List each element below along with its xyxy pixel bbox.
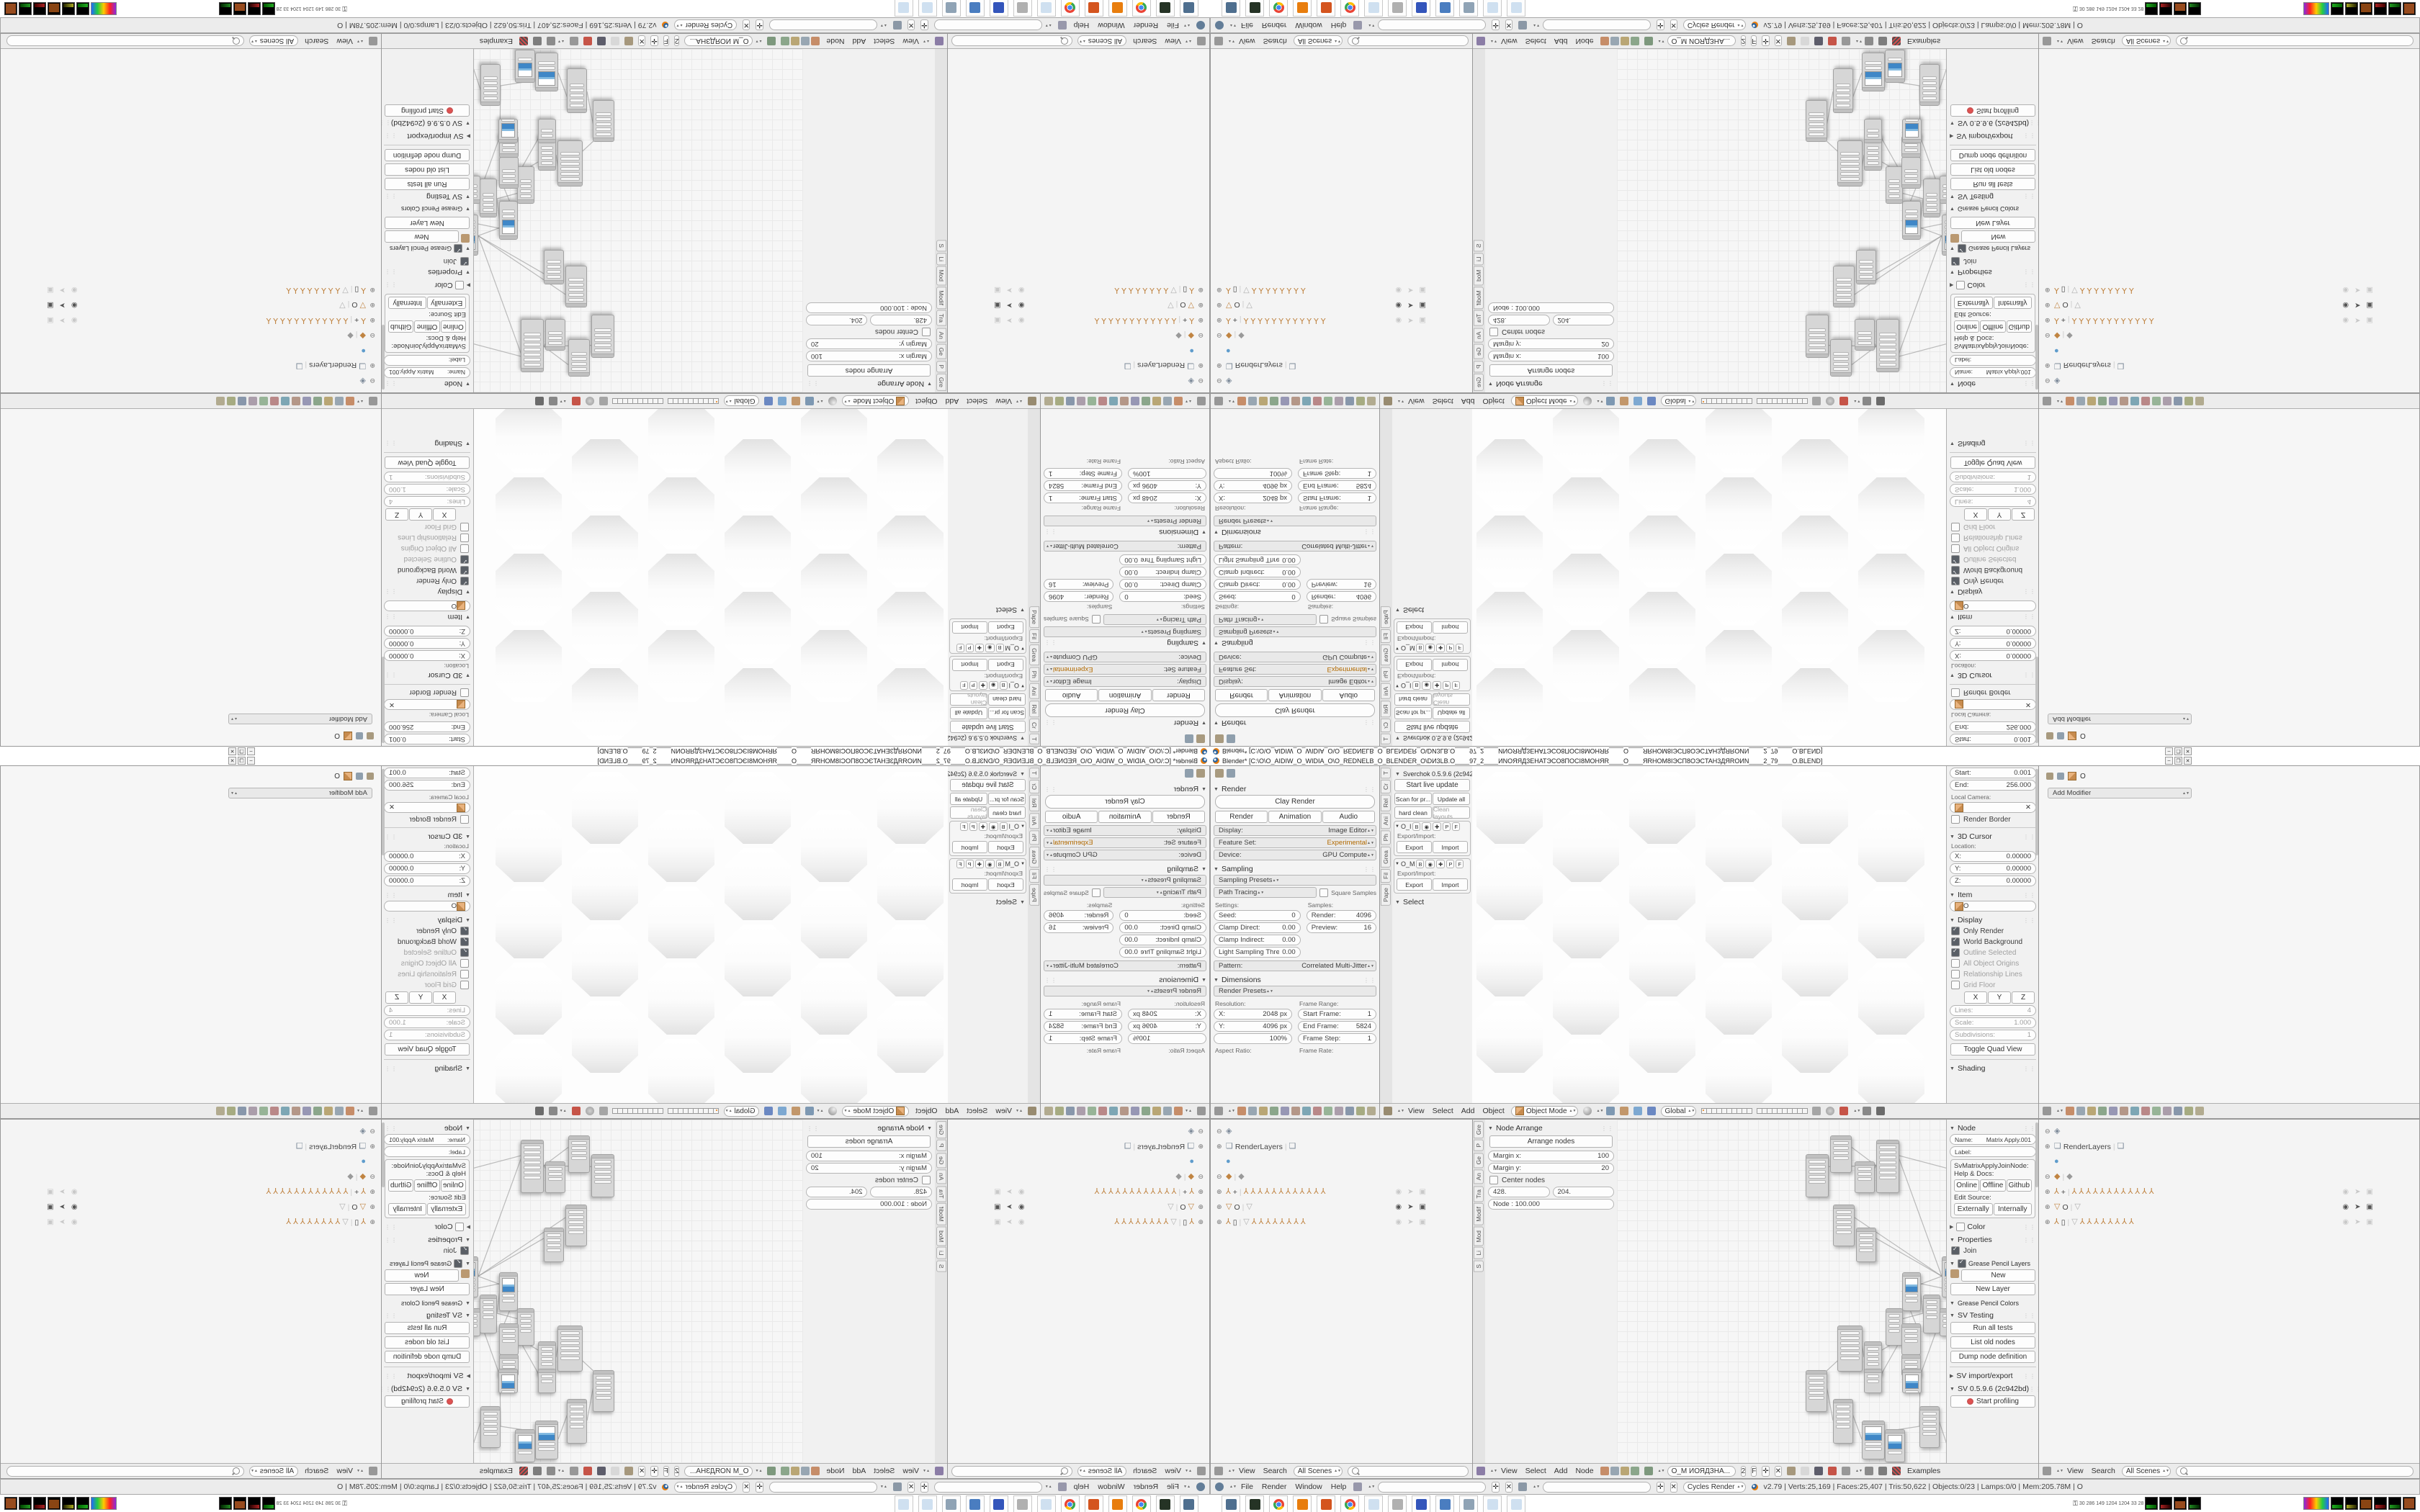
- shelf-tab-an[interactable]: An: [1474, 1169, 1484, 1184]
- layers-grid-2[interactable]: [1757, 398, 1807, 404]
- visibility-eye-icon[interactable]: ◉: [2342, 1203, 2349, 1211]
- display-setting[interactable]: Display:Image Editor▲▼: [1044, 676, 1206, 687]
- tree-toggle-P[interactable]: P: [966, 860, 974, 868]
- bug-icon[interactable]: [597, 37, 606, 45]
- button-z[interactable]: Z: [385, 508, 408, 521]
- shelf-tab-pape[interactable]: Pape: [1381, 884, 1391, 906]
- tool-icon[interactable]: [1185, 769, 1193, 778]
- render-engine-dropdown[interactable]: Cycles Render▲▼: [1683, 1482, 1746, 1493]
- gp-new-layer-button[interactable]: New Layer: [385, 1283, 470, 1295]
- button-render[interactable]: Render: [1152, 811, 1205, 823]
- editor-type-icon[interactable]: [2043, 1467, 2051, 1475]
- tab-icon-0[interactable]: [1600, 37, 1609, 45]
- taskbar-app-image-viewer[interactable]: [966, 1495, 985, 1512]
- tab-icon-2[interactable]: [1259, 1107, 1268, 1115]
- device-setting[interactable]: Device:GPU Compute▲▼: [1214, 850, 1376, 860]
- editor-type-icon[interactable]: [935, 37, 944, 45]
- editor-type-icon[interactable]: [1028, 397, 1036, 405]
- view-menu[interactable]: View: [1500, 37, 1519, 45]
- value-slider[interactable]: Start:0.001: [1950, 734, 2036, 744]
- button-list-old-nodes[interactable]: List old nodes: [385, 1336, 470, 1349]
- layer-toggle[interactable]: [627, 1108, 633, 1114]
- taskbar-app-notepad[interactable]: [1364, 0, 1383, 17]
- selectability-icon[interactable]: ➤: [2354, 1188, 2360, 1196]
- copy-icon[interactable]: [1865, 1467, 1873, 1475]
- device-setting[interactable]: Device:GPU Compute▲▼: [1044, 850, 1206, 860]
- feature-set-setting[interactable]: Feature Set:Experimental▲▼: [1044, 837, 1206, 848]
- window-menu[interactable]: Window: [1294, 21, 1323, 30]
- value-slider[interactable]: Y:4096 px: [1214, 1021, 1292, 1032]
- tree-toggle-F[interactable]: F: [956, 860, 964, 868]
- tab-icon-11[interactable]: [1055, 397, 1064, 405]
- tab-icon-1[interactable]: [801, 1467, 810, 1475]
- outliner-row-▯[interactable]: ⊕⅄▯|▽⅄⅄⅄⅄⅄⅄⅄⅄◉➤▣: [1, 1215, 381, 1230]
- sverchok-node-26[interactable]: [593, 100, 614, 142]
- value-slider[interactable]: 100%: [1214, 1033, 1292, 1044]
- pin-icon[interactable]: [1787, 37, 1796, 45]
- tab-icon-2[interactable]: [324, 397, 333, 405]
- value-slider[interactable]: Clamp Indirect:0.00: [1119, 935, 1206, 945]
- scene-delete-button[interactable]: ✕: [907, 1482, 915, 1493]
- button-hard-clean[interactable]: hard clean: [988, 693, 1026, 706]
- outliner-tree[interactable]: ⊖◈⊕❏RenderLayers|❏ ●⊖◆|◆⊕⅄+|⅄⅄⅄⅄⅄⅄⅄⅄⅄⅄⅄⅄…: [1211, 1120, 1472, 1230]
- item-name-field[interactable]: O: [1950, 901, 2036, 912]
- display-mode-dropdown[interactable]: All Scenes▲▼: [1077, 1466, 1126, 1477]
- value-slider[interactable]: Seed:0: [1214, 591, 1301, 602]
- search-menu[interactable]: Search: [1131, 37, 1158, 45]
- button-list-old-nodes[interactable]: List old nodes: [385, 163, 470, 176]
- add-menu[interactable]: Add: [1460, 397, 1476, 405]
- layer-toggle[interactable]: [653, 398, 658, 404]
- shelf-tab-fil[interactable]: Fil: [1381, 869, 1391, 883]
- selectability-icon[interactable]: ➤: [1006, 1218, 1012, 1226]
- sverchok-node-3[interactable]: [1876, 1140, 1899, 1193]
- taskbar-app-volume[interactable]: [1388, 1495, 1407, 1512]
- editor-type-icon[interactable]: [1197, 397, 1206, 405]
- outliner-tree[interactable]: ⊖◈⊕❏RenderLayers|❏ ●⊖◆|◆⊕⅄+|⅄⅄⅄⅄⅄⅄⅄⅄⅄⅄⅄⅄…: [1, 282, 381, 392]
- tab-icon-12[interactable]: [1367, 1107, 1376, 1115]
- outliner-row-+[interactable]: ⊕⅄+|⅄⅄⅄⅄⅄⅄⅄⅄⅄⅄⅄⅄◉➤▣: [1, 1184, 381, 1200]
- render-camera-icon[interactable]: ▣: [2367, 1203, 2373, 1211]
- render-camera-icon[interactable]: ▣: [2367, 1188, 2373, 1196]
- shelf-tab-li[interactable]: Li: [936, 253, 946, 265]
- layer-toggle[interactable]: [647, 398, 653, 404]
- layers-grid-1[interactable]: [1701, 398, 1752, 404]
- visibility-eye-icon[interactable]: ◉: [1395, 286, 1402, 294]
- sverchok-node-29[interactable]: [480, 64, 501, 106]
- tree-toggle-B[interactable]: B: [1416, 860, 1424, 868]
- value-slider[interactable]: End:256.000: [384, 780, 470, 791]
- value-slider[interactable]: Scale:1.000: [1950, 1017, 2036, 1028]
- layer-toggle[interactable]: [703, 1108, 709, 1114]
- shelf-tab-ge[interactable]: Ge: [1474, 1153, 1484, 1168]
- render-camera-icon[interactable]: ▣: [1420, 286, 1426, 294]
- tab-icon-12[interactable]: [1367, 397, 1376, 405]
- bug-icon[interactable]: [1814, 37, 1823, 45]
- layer-delete-button[interactable]: ✕: [1670, 20, 1677, 31]
- sverchok-node-14[interactable]: [1886, 166, 1903, 204]
- manipulator-scale-icon[interactable]: [1647, 397, 1656, 405]
- value-slider[interactable]: 100%: [1128, 468, 1206, 479]
- search-input[interactable]: [951, 36, 1072, 47]
- selectability-icon[interactable]: ➤: [1006, 316, 1012, 324]
- tab-icon-6[interactable]: [2130, 397, 2139, 405]
- tab-icon-1[interactable]: [335, 397, 344, 405]
- outliner-tree[interactable]: ⊖◈⊕❏RenderLayers|❏ ●⊖◆|◆⊕⅄+|⅄⅄⅄⅄⅄⅄⅄⅄⅄⅄⅄⅄…: [1, 1120, 381, 1230]
- magnet-icon[interactable]: [1828, 37, 1837, 45]
- view-menu[interactable]: View: [1237, 37, 1257, 45]
- render-border-checkbox[interactable]: [1951, 688, 1960, 697]
- view-menu[interactable]: View: [1407, 397, 1426, 405]
- tree-name-O_M[interactable]: O_M: [1005, 644, 1020, 652]
- value-slider[interactable]: Light Sampling Thresho:0.00: [1214, 554, 1301, 565]
- taskbar-app-sverchok-spiral[interactable]: [1317, 1495, 1335, 1512]
- value-slider[interactable]: Clamp Direct:0.00: [1214, 922, 1301, 933]
- layer-toggle[interactable]: [708, 398, 714, 404]
- magnet-icon[interactable]: [583, 1467, 592, 1475]
- search-input[interactable]: [951, 1466, 1072, 1477]
- button-scan-for-pr-[interactable]: Scan for pr...: [1394, 707, 1432, 719]
- help-menu[interactable]: Help: [1072, 21, 1091, 30]
- local-camera-field[interactable]: ✕: [1950, 802, 2036, 813]
- checkbox-relationship-lines[interactable]: [1951, 970, 1960, 978]
- render-camera-icon[interactable]: ▣: [994, 1188, 1000, 1196]
- taskbar-app-notepad[interactable]: [918, 1495, 937, 1512]
- button-scan-for-pr-[interactable]: Scan for pr...: [988, 707, 1026, 719]
- sverchok-node-15[interactable]: [480, 179, 497, 217]
- node-menu[interactable]: Node: [1574, 37, 1595, 45]
- button-internally[interactable]: Internally: [388, 1203, 427, 1215]
- shelf-tab-t[interactable]: T: [1029, 768, 1039, 778]
- checkbox-outline-selected[interactable]: [460, 555, 469, 564]
- info-editor-icon[interactable]: [1215, 21, 1224, 30]
- checkbox-only-render[interactable]: [460, 927, 469, 935]
- tree-toggle-✚[interactable]: ✚: [975, 860, 984, 868]
- display-setting[interactable]: Display:Image Editor▲▼: [1044, 825, 1206, 836]
- layers-grid-2[interactable]: [613, 398, 663, 404]
- outliner-row-RenderLayers[interactable]: ⊕❏RenderLayers|❏: [948, 1139, 1209, 1154]
- shelf-tab-tra[interactable]: Tra: [1474, 310, 1484, 326]
- layer-toggle[interactable]: [683, 398, 689, 404]
- button-clean-layouts[interactable]: Clean layouts: [950, 693, 987, 706]
- button-animation[interactable]: Animation: [1268, 689, 1321, 701]
- layers-grid-2[interactable]: [1757, 1108, 1807, 1114]
- gp-new-button[interactable]: New: [1961, 230, 2035, 243]
- value-slider[interactable]: Frame Step:1: [1044, 468, 1122, 479]
- pivot-icon[interactable]: [1606, 397, 1615, 405]
- layer-toggle[interactable]: [673, 398, 678, 404]
- sverchok-node-31[interactable]: [1885, 1429, 1905, 1462]
- shelf-tab-ge[interactable]: Ge: [936, 1153, 946, 1168]
- shelf-tab-li[interactable]: Li: [1474, 253, 1484, 265]
- value-slider[interactable]: X:0.00000: [384, 650, 470, 661]
- tree-toggle-P[interactable]: P: [966, 644, 974, 652]
- editor-type-icon[interactable]: [2043, 397, 2051, 405]
- sverchok-node-2[interactable]: [545, 1161, 565, 1193]
- layer-toggle[interactable]: [688, 1108, 694, 1114]
- value-slider[interactable]: Preview:16: [1307, 579, 1376, 590]
- tab-icon-9[interactable]: [248, 397, 257, 405]
- examples-menu[interactable]: Examples: [1906, 37, 1942, 45]
- selectability-icon[interactable]: ➤: [59, 316, 65, 324]
- tab-icon-5[interactable]: [2120, 397, 2128, 405]
- layer-toggle[interactable]: [698, 1108, 704, 1114]
- sverchok-node-27[interactable]: [567, 1399, 587, 1444]
- toggle-quad-view-button[interactable]: Toggle Quad View: [1950, 456, 2035, 469]
- layer-toggle[interactable]: [708, 1108, 714, 1114]
- pin-icon[interactable]: [624, 37, 633, 45]
- manipulator-translate-icon[interactable]: [1620, 397, 1628, 405]
- tree-toggle-B[interactable]: B: [1416, 644, 1424, 652]
- button-run-all-tests[interactable]: Run all tests: [385, 1322, 470, 1334]
- tab-icon-10[interactable]: [2174, 1107, 2182, 1115]
- taskbar-app-notepad[interactable]: [1483, 0, 1502, 17]
- button-z[interactable]: Z: [385, 991, 408, 1004]
- arrange-nodes-button[interactable]: Arrange nodes: [1489, 1135, 1613, 1148]
- value-slider[interactable]: Frame Step:1: [1044, 1033, 1122, 1044]
- value-slider[interactable]: X:0.00000: [384, 851, 470, 862]
- value-slider[interactable]: Margin y:20: [806, 1163, 932, 1174]
- button-github[interactable]: Github: [388, 1179, 413, 1192]
- tree-toggle-F[interactable]: F: [1456, 860, 1464, 868]
- visibility-eye-icon[interactable]: ◉: [1395, 1218, 1402, 1226]
- outliner-tree[interactable]: ⊖◈⊕❏RenderLayers|❏ ●⊖◆|◆⊕⅄+|⅄⅄⅄⅄⅄⅄⅄⅄⅄⅄⅄⅄…: [948, 282, 1209, 392]
- visibility-eye-icon[interactable]: ◉: [1395, 316, 1402, 324]
- checkbox-all-object-origins[interactable]: [1951, 544, 1960, 553]
- pin-icon[interactable]: [1196, 734, 1205, 743]
- node-label-field[interactable]: Label:: [384, 355, 470, 366]
- value-slider[interactable]: Clamp Direct:0.00: [1119, 579, 1206, 590]
- toolshelf-tabs[interactable]: TCrRelAniPhGreaFilPape: [1380, 766, 1393, 1104]
- taskbar-app-floppy-64[interactable]: [1412, 1495, 1430, 1512]
- tab-icon-9[interactable]: [248, 1107, 257, 1115]
- outliner-row-▯[interactable]: ⊕⅄▯|▽⅄⅄⅄⅄⅄⅄⅄⅄◉➤▣: [2039, 1215, 2419, 1230]
- opengl-animation-icon[interactable]: [1876, 1107, 1885, 1115]
- tree-type-icons[interactable]: [781, 37, 820, 45]
- taskbar-app-power-manager[interactable]: [1156, 1495, 1175, 1512]
- node-label-field[interactable]: Label:: [1950, 1146, 2036, 1157]
- select-menu[interactable]: Select: [1431, 1107, 1455, 1115]
- help-menu[interactable]: Help: [1330, 1482, 1348, 1491]
- snap-magnet-icon[interactable]: [572, 1107, 581, 1115]
- shelf-tab-ph[interactable]: Ph: [1381, 667, 1391, 681]
- shelf-tab-rel[interactable]: Rel: [1381, 795, 1391, 811]
- join-checkbox[interactable]: [1951, 1246, 1960, 1255]
- render-camera-icon[interactable]: ▣: [2367, 301, 2373, 309]
- editor-type-icon[interactable]: [369, 1467, 377, 1475]
- layers-grid-1[interactable]: [668, 398, 719, 404]
- layer-toggle[interactable]: [632, 398, 638, 404]
- sverchok-node-3[interactable]: [1876, 319, 1899, 372]
- value-slider[interactable]: Clamp Indirect:0.00: [1214, 935, 1301, 945]
- button-import[interactable]: Import: [1433, 841, 1468, 853]
- editor-type-icon[interactable]: [1028, 1107, 1036, 1115]
- outliner-row-O[interactable]: ⊕▽O|▽◉➤▣: [1, 1200, 381, 1215]
- scene-delete-button[interactable]: ✕: [1505, 1482, 1512, 1493]
- button-github[interactable]: Github: [2007, 1179, 2032, 1192]
- tab-icon-1[interactable]: [2076, 397, 2085, 405]
- outliner-row[interactable]: ⊖◈: [1, 1124, 381, 1139]
- tab-icon-0[interactable]: [1237, 1107, 1246, 1115]
- value-slider[interactable]: Y:0.00000: [1950, 638, 2036, 649]
- button-x[interactable]: X: [1964, 991, 1987, 1004]
- device-setting[interactable]: Device:GPU Compute▲▼: [1044, 652, 1206, 662]
- button-import[interactable]: Import: [952, 621, 987, 634]
- integrator-dropdown[interactable]: Path Tracing▲▼: [1103, 614, 1206, 625]
- view-menu[interactable]: View: [1237, 1467, 1257, 1475]
- outliner-row[interactable]: ⊖◆|◆: [948, 328, 1209, 343]
- value-slider[interactable]: Lines:4: [1950, 496, 2036, 507]
- search-menu[interactable]: Search: [1262, 1467, 1289, 1475]
- selectability-icon[interactable]: ➤: [2354, 316, 2360, 324]
- select-menu[interactable]: Select: [872, 37, 896, 45]
- file-menu[interactable]: File: [1240, 1482, 1255, 1491]
- object-name[interactable]: O: [334, 773, 340, 780]
- tree-name-O_I[interactable]: O_I: [1009, 823, 1020, 830]
- button-import[interactable]: Import: [1433, 621, 1468, 634]
- value-slider[interactable]: End Frame:5824: [1044, 480, 1122, 491]
- shelf-tab-li[interactable]: Li: [936, 1247, 946, 1259]
- value-slider[interactable]: Seed:0: [1119, 591, 1206, 602]
- local-camera-field[interactable]: ✕: [384, 802, 470, 813]
- unlink-tree-button[interactable]: ✕: [1775, 36, 1782, 47]
- tab-icon-12[interactable]: [216, 397, 225, 405]
- join-checkbox[interactable]: [460, 257, 469, 266]
- checkbox-only-render[interactable]: [1951, 577, 1960, 585]
- tab-icon-8[interactable]: [1324, 397, 1332, 405]
- value-slider[interactable]: Clamp Indirect:0.00: [1119, 567, 1206, 577]
- orientation-dropdown[interactable]: Global▲▼: [1661, 396, 1697, 407]
- value-slider[interactable]: Clamp Direct:0.00: [1214, 579, 1301, 590]
- render-camera-icon[interactable]: ▣: [994, 1203, 1000, 1211]
- toggle-quad-view-button[interactable]: Toggle Quad View: [385, 1043, 470, 1056]
- visibility-eye-icon[interactable]: ◉: [2342, 316, 2349, 324]
- sverchok-node-0[interactable]: [1806, 315, 1829, 358]
- window-menu[interactable]: Window: [1096, 1482, 1126, 1491]
- tree-name-O_I[interactable]: O_I: [1401, 823, 1412, 830]
- taskbar-app-sverchok-spiral[interactable]: [1317, 0, 1335, 17]
- value-slider[interactable]: Preview:16: [1044, 579, 1113, 590]
- shelf-tab-s[interactable]: S: [1474, 1261, 1484, 1272]
- taskbar-app-notepad[interactable]: [1364, 1495, 1383, 1512]
- taskbar-app-floppy-64[interactable]: [1412, 0, 1430, 17]
- button-externally[interactable]: Externally: [1954, 297, 1993, 309]
- shelf-tab-pape[interactable]: Pape: [1029, 607, 1039, 629]
- value-slider[interactable]: Seed:0: [1119, 910, 1206, 921]
- tab-icon-2[interactable]: [1621, 37, 1629, 45]
- layer-toggle[interactable]: [1802, 1108, 1808, 1114]
- value-slider[interactable]: Start:0.001: [384, 734, 470, 744]
- scene-name-field[interactable]: [934, 1482, 1042, 1493]
- shelf-tab-an[interactable]: An: [936, 1169, 946, 1184]
- tab-icon-3[interactable]: [1270, 397, 1278, 405]
- value-slider[interactable]: Lines:4: [384, 1005, 470, 1016]
- checkbox-only-render[interactable]: [460, 577, 469, 585]
- sverchok-node-27[interactable]: [1833, 1399, 1853, 1444]
- layer-delete-button[interactable]: ✕: [1670, 1482, 1677, 1493]
- node-canvas[interactable]: [474, 48, 803, 392]
- outliner-row-▯[interactable]: ⊕⅄▯|▽⅄⅄⅄⅄⅄⅄⅄⅄◉➤▣: [1211, 1215, 1472, 1230]
- shelf-tab-p[interactable]: P: [1474, 361, 1484, 372]
- search-menu[interactable]: Search: [2090, 1467, 2117, 1475]
- sampling-presets-dropdown[interactable]: Sampling Presets▲▼: [1214, 875, 1376, 886]
- value-slider[interactable]: Y:0.00000: [384, 863, 470, 874]
- sverchok-node-22[interactable]: [1864, 119, 1882, 143]
- file-menu[interactable]: File: [1165, 1482, 1180, 1491]
- mode-dropdown[interactable]: Object Mode▲▼: [1511, 396, 1578, 407]
- value-slider[interactable]: Preview:16: [1044, 922, 1113, 933]
- tab-icon-10[interactable]: [238, 397, 246, 405]
- taskbar-app-system-monitor[interactable]: [1180, 1495, 1198, 1512]
- tab-icon-9[interactable]: [1077, 1107, 1085, 1115]
- value-slider[interactable]: Start Frame:1: [1044, 1009, 1122, 1020]
- tab-icon-6[interactable]: [1302, 397, 1311, 405]
- pin-icon[interactable]: [1787, 1467, 1796, 1475]
- tab-icon-6[interactable]: [281, 1107, 290, 1115]
- shelf-tab-rel[interactable]: Rel: [1029, 701, 1039, 717]
- sverchok-node-28[interactable]: [535, 1421, 558, 1459]
- display-mode-dropdown[interactable]: All Scenes▲▼: [1077, 36, 1126, 47]
- visibility-eye-icon[interactable]: ◉: [1018, 286, 1025, 294]
- tab-icon-2[interactable]: [1621, 1467, 1629, 1475]
- editor-type-icon[interactable]: [1384, 397, 1392, 405]
- button-export[interactable]: Export: [988, 878, 1023, 891]
- gp-new-button[interactable]: New: [385, 1269, 459, 1282]
- taskbar-app-blender[interactable]: [1293, 1495, 1312, 1512]
- node-tree-icon[interactable]: [1644, 37, 1653, 45]
- layers-grid-2[interactable]: [613, 1108, 663, 1114]
- value-slider[interactable]: X:0.00000: [1950, 851, 2036, 862]
- taskbar-app-calculator[interactable]: [942, 1495, 961, 1512]
- tab-icon-1[interactable]: [1610, 37, 1619, 45]
- selectability-icon[interactable]: ➤: [59, 286, 65, 294]
- scene-add-button[interactable]: ✛: [920, 1482, 928, 1493]
- button-run-all-tests[interactable]: Run all tests: [1950, 1322, 2035, 1334]
- viewport-canvas[interactable]: [1472, 408, 1946, 746]
- outliner-row[interactable]: ⊖◈: [2039, 1124, 2419, 1139]
- render-camera-icon[interactable]: ▣: [2367, 1218, 2373, 1226]
- button-animation[interactable]: Animation: [1268, 811, 1321, 823]
- tab-icon-7[interactable]: [1313, 1107, 1322, 1115]
- display-mode-dropdown[interactable]: All Scenes▲▼: [1294, 1466, 1343, 1477]
- button-y[interactable]: Y: [409, 991, 432, 1004]
- button-export[interactable]: Export: [988, 621, 1023, 634]
- unlink-tree-button[interactable]: ✕: [638, 1466, 645, 1477]
- button-x[interactable]: X: [1964, 508, 1987, 521]
- tree-toggle-◉[interactable]: ◉: [989, 822, 998, 831]
- shelf-tab-ph[interactable]: Ph: [1381, 830, 1391, 845]
- tab-icon-4[interactable]: [302, 1107, 311, 1115]
- sverchok-node-27[interactable]: [567, 68, 587, 113]
- taskbar-app-notepad[interactable]: [895, 1495, 913, 1512]
- opengl-animation-icon[interactable]: [535, 397, 544, 405]
- add-modifier-dropdown[interactable]: Add Modifier▲▼: [228, 788, 372, 798]
- render-camera-icon[interactable]: ▣: [47, 316, 53, 324]
- layer-toggle[interactable]: [622, 1108, 628, 1114]
- visibility-eye-icon[interactable]: ◉: [71, 1218, 78, 1226]
- shelf-tab-pape[interactable]: Pape: [1381, 607, 1391, 629]
- manipulator-scale-icon[interactable]: [764, 397, 773, 405]
- value-slider[interactable]: X:2048 px: [1214, 492, 1292, 503]
- help-menu[interactable]: Help: [1072, 1482, 1091, 1491]
- paste-icon[interactable]: [533, 1467, 542, 1475]
- button-update-all[interactable]: Update all: [950, 707, 987, 719]
- tab-icon-4[interactable]: [2109, 397, 2117, 405]
- selectability-icon[interactable]: ➤: [1006, 286, 1012, 294]
- shelf-tab-grea[interactable]: Grea: [1381, 644, 1391, 665]
- tab-icon-3[interactable]: [313, 397, 322, 405]
- tab-icon-8[interactable]: [2152, 397, 2161, 405]
